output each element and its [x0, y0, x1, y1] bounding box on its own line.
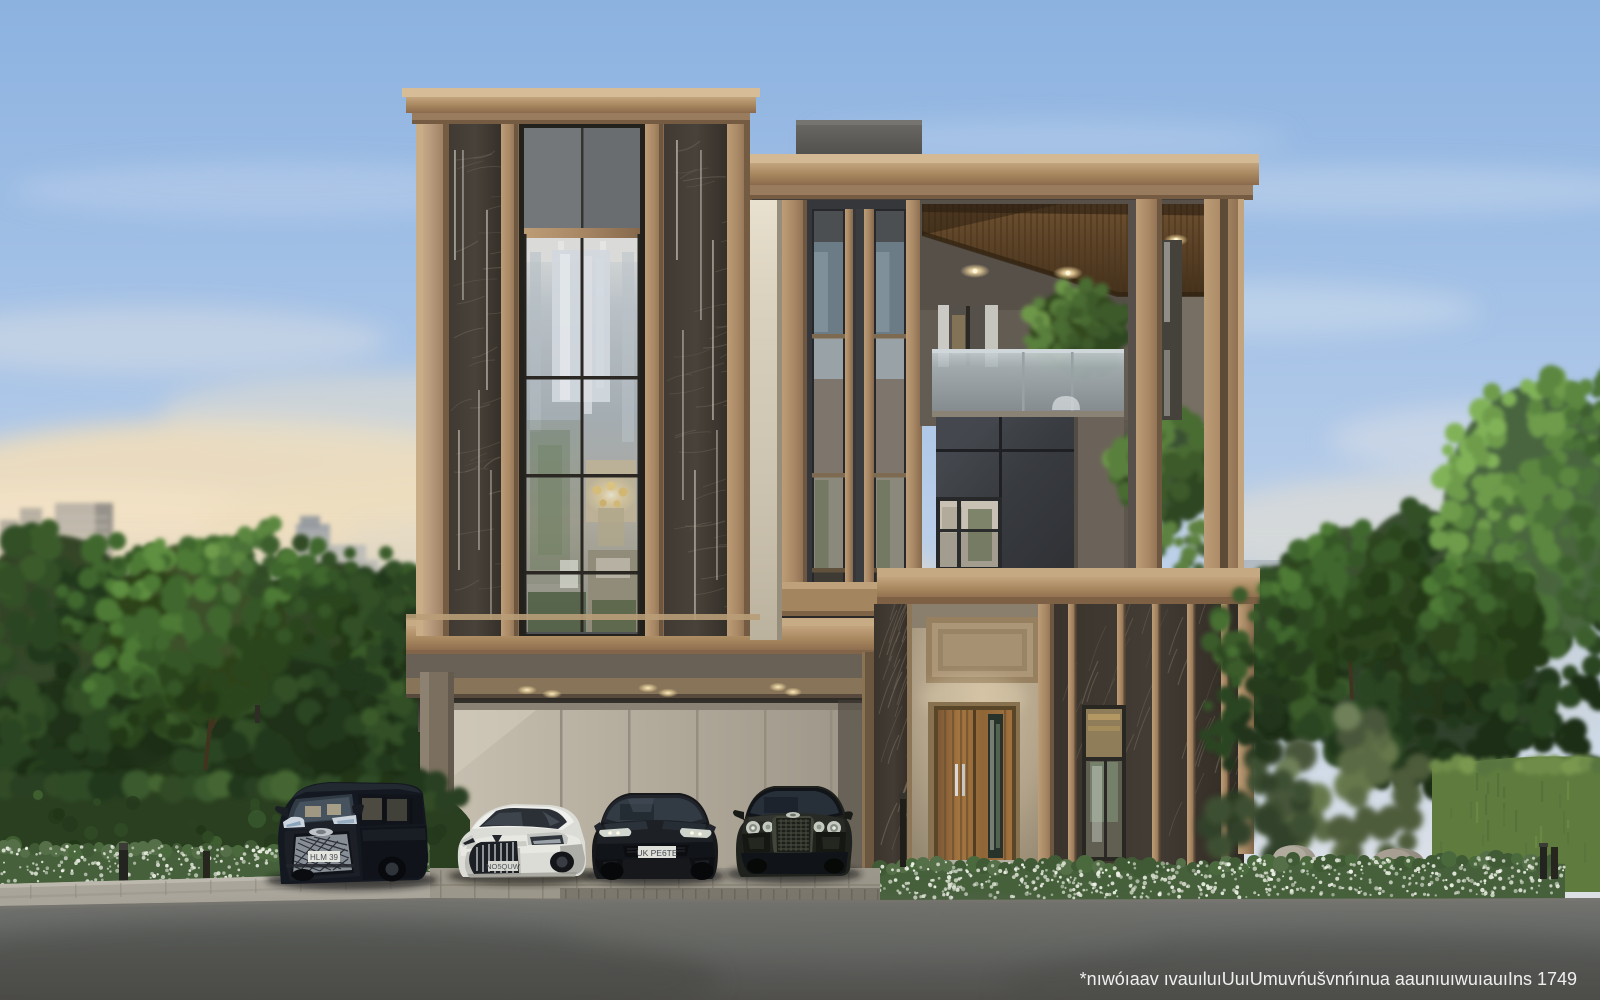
svg-text:*nıwóıaav ıvauıluıUuıUmuvńuš: *nıwóıaav ıvauıluıUuıUmuvńušvnńınua a… [1080, 969, 1577, 989]
svg-text:UK PE6TE: UK PE6TE [636, 848, 677, 858]
svg-text:NO5QUW: NO5QUW [486, 862, 521, 871]
svg-text:HLM 39: HLM 39 [310, 853, 339, 862]
